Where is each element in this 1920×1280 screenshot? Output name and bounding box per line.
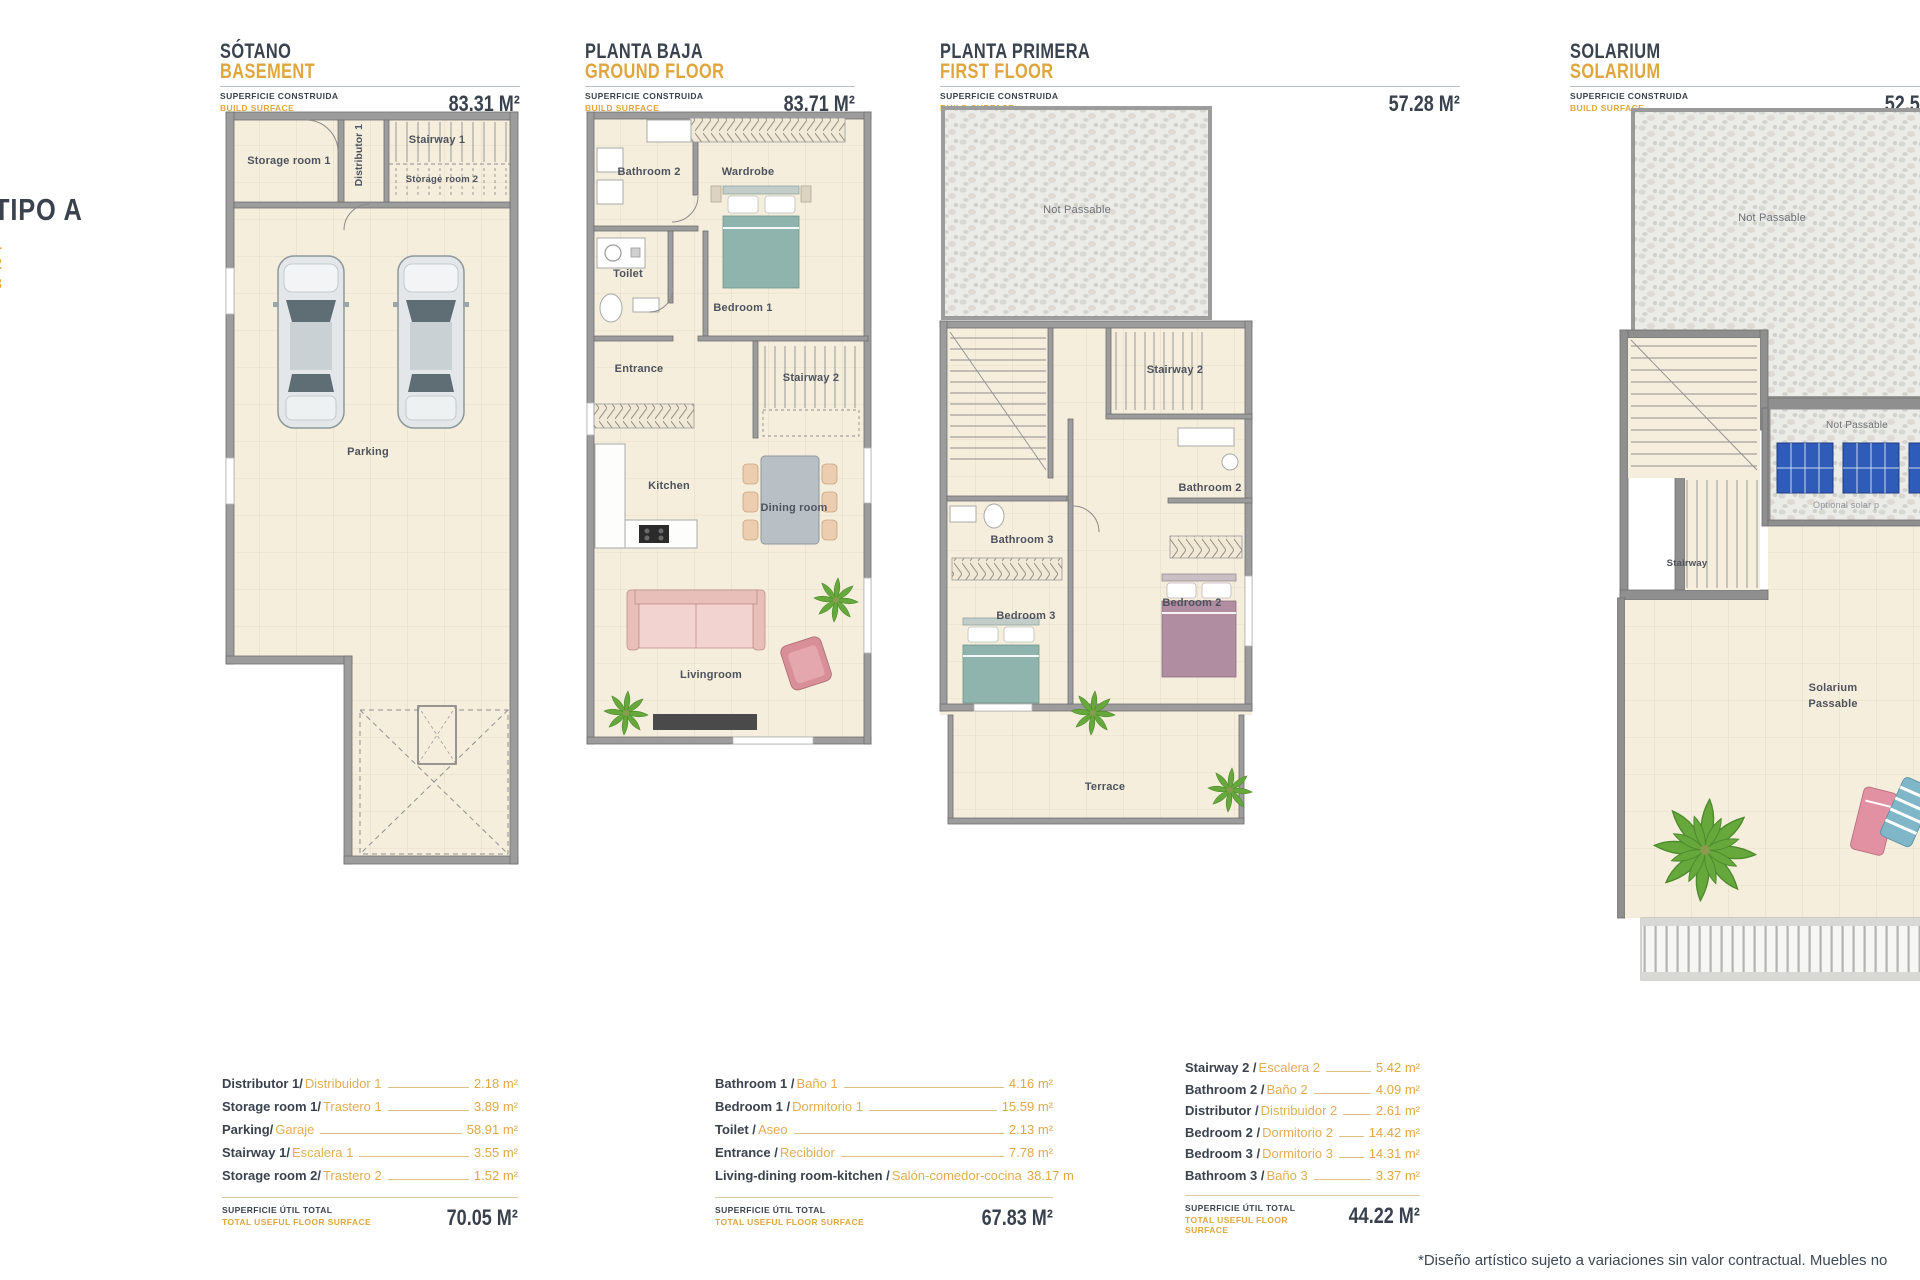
legend-row: Bedroom 2 / Dormitorio 2 14.42 m² bbox=[1185, 1125, 1420, 1147]
tv-bench-icon bbox=[653, 714, 757, 730]
room-label-stairway: Stairway bbox=[1667, 558, 1708, 569]
legend-room-es: Garaje bbox=[275, 1122, 314, 1137]
legend-room-es: Distribuidor 2 bbox=[1261, 1103, 1338, 1118]
room-label-solarium-passable: Solarium Passable bbox=[1808, 680, 1857, 712]
legend-room-es: Dormitorio 1 bbox=[792, 1099, 863, 1114]
surface-label-es: SUPERFICIE CONSTRUIDA bbox=[585, 91, 703, 101]
surface-label-es: SUPERFICIE CONSTRUIDA bbox=[220, 91, 338, 101]
legend-room-en: Toilet / bbox=[715, 1122, 756, 1137]
room-label-bedroom2: Bedroom 2 bbox=[1162, 597, 1221, 609]
legend-room-en: Bedroom 3 / bbox=[1185, 1146, 1260, 1161]
legend-leader-line bbox=[1343, 1114, 1371, 1115]
total-label-es: SUPERFICIE ÚTIL TOTAL bbox=[222, 1205, 371, 1215]
legend-row: Storage room 2/ Trastero 2 1.52 m² bbox=[222, 1168, 518, 1191]
legend-room-en: Stairway 1/ bbox=[222, 1145, 290, 1160]
lift-icon bbox=[418, 706, 456, 764]
header-divider bbox=[585, 86, 855, 87]
legend-room-en: Stairway 2 / bbox=[1185, 1060, 1257, 1075]
legend-leader-line bbox=[794, 1133, 1004, 1134]
panel-title-en: GROUND FLOOR bbox=[585, 62, 796, 82]
header-divider bbox=[220, 86, 520, 87]
room-label-bathroom3: Bathroom 3 bbox=[990, 534, 1053, 546]
room-label-bathroom2: Bathroom 2 bbox=[617, 166, 680, 178]
solarium-floor-main bbox=[1625, 600, 1920, 918]
legend-total: SUPERFICIE ÚTIL TOTAL TOTAL USEFUL FLOOR… bbox=[1185, 1203, 1420, 1235]
legend-total: SUPERFICIE ÚTIL TOTAL TOTAL USEFUL FLOOR… bbox=[222, 1205, 518, 1231]
room-label-bedroom1: Bedroom 1 bbox=[713, 302, 772, 314]
wardrobe-hatch bbox=[952, 558, 1062, 580]
legend-leader-line bbox=[388, 1087, 469, 1088]
legend-room-en: Distributor / bbox=[1185, 1103, 1259, 1118]
room-label-not-passable: Not Passable bbox=[1043, 204, 1111, 216]
legend-room-en: Bathroom 3 / bbox=[1185, 1168, 1264, 1183]
type-label: TIPO A bbox=[0, 192, 83, 228]
legend-row: Distributor 1/ Distribuidor 1 2.18 m² bbox=[222, 1076, 518, 1099]
legend-room-value: 3.89 m² bbox=[474, 1099, 518, 1114]
surface-value: 57.28 M² bbox=[1389, 91, 1460, 117]
legend-leader-line bbox=[869, 1110, 997, 1111]
legend-room-es: Recibidor bbox=[780, 1145, 835, 1160]
wardrobe-hatch bbox=[690, 118, 845, 142]
hall-closet-hatch bbox=[594, 404, 694, 428]
floorplan-sheet: TIPO A 1 2 3 SÓTANO BASEMENT SUPERFICIE … bbox=[0, 0, 1920, 1280]
legend-room-es: Escalera 1 bbox=[292, 1145, 353, 1160]
dining-set-icon bbox=[743, 456, 837, 544]
surface-label-es: SUPERFICIE CONSTRUIDA bbox=[940, 91, 1058, 101]
legend-room-en: Storage room 1/ bbox=[222, 1099, 321, 1114]
legend-row: Storage room 1/ Trastero 1 3.89 m² bbox=[222, 1099, 518, 1122]
legend-divider bbox=[1185, 1195, 1420, 1196]
solar-panel-icon bbox=[1777, 443, 1920, 493]
car-icon bbox=[273, 256, 349, 428]
legend-room-value: 4.16 m² bbox=[1009, 1076, 1053, 1091]
room-label-distributor1: Distributor 1 bbox=[353, 124, 365, 186]
room-label-not-passable-top: Not Passable bbox=[1738, 212, 1806, 224]
legend-room-value: 15.59 m² bbox=[1002, 1099, 1053, 1114]
legend-leader-line bbox=[388, 1179, 469, 1180]
solarium-floor-upper bbox=[1768, 526, 1920, 600]
legend-room-value: 3.37 m² bbox=[1376, 1168, 1420, 1183]
legend-room-en: Living-dining room-kitchen / bbox=[715, 1168, 890, 1183]
terrace-floor bbox=[948, 715, 1244, 822]
legend-room-es: Salón-comedor-cocina bbox=[892, 1168, 1022, 1183]
basement-floor bbox=[226, 112, 518, 864]
room-label-dining: Dining room bbox=[761, 502, 828, 514]
legend-room-value: 14.42 m² bbox=[1369, 1125, 1420, 1140]
legend-row: Bedroom 1 / Dormitorio 1 15.59 m² bbox=[715, 1099, 1053, 1122]
room-label-stairway2: Stairway 2 bbox=[1147, 364, 1203, 376]
legend-leader-line bbox=[1326, 1071, 1371, 1072]
car-icon bbox=[393, 256, 469, 428]
solarium-floorplan: Not Passable Not Passable Optional solar… bbox=[1617, 108, 1920, 993]
legend-room-value: 38.17 m bbox=[1027, 1168, 1074, 1183]
room-label-terrace: Terrace bbox=[1085, 781, 1125, 793]
room-label-living: Livingroom bbox=[680, 669, 742, 681]
total-value: 67.83 M² bbox=[982, 1205, 1053, 1231]
legend-room-value: 7.78 m² bbox=[1009, 1145, 1053, 1160]
legend-room-value: 2.18 m² bbox=[474, 1076, 518, 1091]
legend-row: Bathroom 2 / Baño 2 4.09 m² bbox=[1185, 1082, 1420, 1104]
room-label-stairway2: Stairway 2 bbox=[783, 372, 839, 384]
room-label-toilet: Toilet bbox=[613, 268, 643, 280]
room-label-storage1: Storage room 1 bbox=[247, 155, 331, 167]
legend-room-value: 58.91 m² bbox=[467, 1122, 518, 1137]
first-legend: Stairway 2 / Escalera 2 5.42 m² Bathroom… bbox=[1185, 1060, 1420, 1235]
legend-room-es: Dormitorio 2 bbox=[1262, 1125, 1333, 1140]
room-label-optional-panels: Optional solar p bbox=[1813, 500, 1879, 510]
pergola-icon bbox=[1641, 918, 1920, 980]
total-label-en: TOTAL USEFUL FLOOR SURFACE bbox=[715, 1217, 864, 1227]
legend-room-en: Bedroom 1 / bbox=[715, 1099, 790, 1114]
basement-header: SÓTANO BASEMENT SUPERFICIE CONSTRUIDA BU… bbox=[220, 42, 520, 117]
legend-leader-line bbox=[359, 1156, 469, 1157]
legend-row: Bedroom 3 / Dormitorio 3 14.31 m² bbox=[1185, 1146, 1420, 1168]
legend-room-en: Storage room 2/ bbox=[222, 1168, 321, 1183]
legend-room-en: Bedroom 2 / bbox=[1185, 1125, 1260, 1140]
legend-room-en: Bathroom 1 / bbox=[715, 1076, 794, 1091]
ground-floorplan: Bathroom 2 Wardrobe Toilet Bedroom 1 Ent… bbox=[583, 108, 875, 748]
legend-room-value: 3.55 m² bbox=[474, 1145, 518, 1160]
room-label-bedroom3: Bedroom 3 bbox=[996, 610, 1055, 622]
type-unit-1: 1 bbox=[0, 236, 2, 254]
legend-divider bbox=[222, 1197, 518, 1198]
type-unit-3: 3 bbox=[0, 276, 2, 294]
legend-room-en: Parking/ bbox=[222, 1122, 273, 1137]
legend-leader-line bbox=[1339, 1136, 1364, 1137]
legend-room-es: Escalera 2 bbox=[1259, 1060, 1320, 1075]
washer-detail bbox=[631, 248, 640, 257]
room-label-entrance: Entrance bbox=[615, 363, 664, 375]
legend-room-es: Trastero 1 bbox=[323, 1099, 382, 1114]
room-label-parking: Parking bbox=[347, 446, 389, 458]
total-value: 44.22 M² bbox=[1349, 1203, 1420, 1229]
legend-leader-line bbox=[1314, 1093, 1371, 1094]
legend-room-es: Aseo bbox=[758, 1122, 788, 1137]
legend-total: SUPERFICIE ÚTIL TOTAL TOTAL USEFUL FLOOR… bbox=[715, 1205, 1053, 1231]
sofa-icon bbox=[627, 590, 765, 650]
ground-floor-header: PLANTA BAJA GROUND FLOOR SUPERFICIE CONS… bbox=[585, 42, 855, 117]
panel-title-en: BASEMENT bbox=[220, 62, 454, 82]
room-label-stairway1: Stairway 1 bbox=[409, 134, 465, 146]
legend-room-value: 14.31 m² bbox=[1369, 1146, 1420, 1161]
room-label-storage2: Storage room 2 bbox=[406, 174, 478, 185]
total-label-en: TOTAL USEFUL FLOOR SURFACE bbox=[1185, 1215, 1333, 1235]
solarium-header: SOLARIUM SOLARIUM SUPERFICIE CONSTRUIDA … bbox=[1570, 42, 1920, 117]
cooktop-icon bbox=[639, 525, 669, 543]
basement-legend: Distributor 1/ Distribuidor 1 2.18 m² St… bbox=[222, 1076, 518, 1231]
legend-room-value: 1.52 m² bbox=[474, 1168, 518, 1183]
total-label-es: SUPERFICIE ÚTIL TOTAL bbox=[1185, 1203, 1333, 1213]
disclaimer-text: *Diseño artístico sujeto a variaciones s… bbox=[1418, 1252, 1887, 1269]
total-label-es: SUPERFICIE ÚTIL TOTAL bbox=[715, 1205, 864, 1215]
legend-row: Stairway 1/ Escalera 1 3.55 m² bbox=[222, 1145, 518, 1168]
type-unit-2: 2 bbox=[0, 256, 2, 274]
legend-leader-line bbox=[388, 1110, 469, 1111]
legend-row: Stairway 2 / Escalera 2 5.42 m² bbox=[1185, 1060, 1420, 1082]
legend-room-es: Baño 2 bbox=[1266, 1082, 1307, 1097]
legend-row: Distributor / Distribuidor 2 2.61 m² bbox=[1185, 1103, 1420, 1125]
room-label-bathroom2: Bathroom 2 bbox=[1178, 482, 1241, 494]
legend-row: Toilet / Aseo 2.13 m² bbox=[715, 1122, 1053, 1145]
surface-label-es: SUPERFICIE CONSTRUIDA bbox=[1570, 91, 1688, 101]
total-value: 70.05 M² bbox=[447, 1205, 518, 1231]
panel-title-en: SOLARIUM bbox=[1570, 62, 1843, 82]
legend-row: Parking/ Garaje 58.91 m² bbox=[222, 1122, 518, 1145]
legend-room-value: 5.42 m² bbox=[1376, 1060, 1420, 1075]
legend-leader-line bbox=[1339, 1157, 1364, 1158]
stair-upper-floor bbox=[1628, 338, 1760, 478]
panel-title-es: PLANTA BAJA bbox=[585, 42, 796, 62]
legend-divider bbox=[715, 1197, 1053, 1198]
legend-room-es: Dormitorio 3 bbox=[1262, 1146, 1333, 1161]
legend-row: Bathroom 1 / Baño 1 4.16 m² bbox=[715, 1076, 1053, 1099]
header-divider bbox=[940, 86, 1460, 87]
room-label-not-passable-panels: Not Passable bbox=[1826, 420, 1888, 431]
legend-leader-line bbox=[1314, 1179, 1371, 1180]
legend-leader-line bbox=[844, 1087, 1004, 1088]
room-label-kitchen: Kitchen bbox=[648, 480, 690, 492]
legend-leader-line bbox=[320, 1133, 461, 1134]
legend-room-value: 2.61 m² bbox=[1376, 1103, 1420, 1118]
legend-row: Living-dining room-kitchen / Salón-comed… bbox=[715, 1168, 1053, 1191]
legend-room-en: Bathroom 2 / bbox=[1185, 1082, 1264, 1097]
room-label-wardrobe: Wardrobe bbox=[722, 166, 775, 178]
legend-leader-line bbox=[841, 1156, 1004, 1157]
legend-room-es: Distribuidor 1 bbox=[305, 1076, 382, 1091]
legend-row: Bathroom 3 / Baño 3 3.37 m² bbox=[1185, 1168, 1420, 1190]
panel-title-es: SOLARIUM bbox=[1570, 42, 1843, 62]
legend-room-en: Entrance / bbox=[715, 1145, 778, 1160]
panel-title-en: FIRST FLOOR bbox=[940, 62, 1346, 82]
legend-room-value: 2.13 m² bbox=[1009, 1122, 1053, 1137]
legend-room-value: 4.09 m² bbox=[1376, 1082, 1420, 1097]
ground-legend: Bathroom 1 / Baño 1 4.16 m² Bedroom 1 / … bbox=[715, 1076, 1053, 1231]
legend-row: Entrance / Recibidor 7.78 m² bbox=[715, 1145, 1053, 1168]
panel-title-es: SÓTANO bbox=[220, 42, 454, 62]
legend-room-es: Trastero 2 bbox=[323, 1168, 382, 1183]
header-divider bbox=[1570, 86, 1920, 87]
stair-lower-floor bbox=[1685, 478, 1760, 590]
panel-title-es: PLANTA PRIMERA bbox=[940, 42, 1346, 62]
basement-floorplan: Storage room 1 Distributor 1 Stairway 1 … bbox=[222, 108, 522, 872]
wardrobe-hatch bbox=[1170, 536, 1242, 558]
legend-room-es: Baño 1 bbox=[796, 1076, 837, 1091]
legend-room-es: Baño 3 bbox=[1266, 1168, 1307, 1183]
total-label-en: TOTAL USEFUL FLOOR SURFACE bbox=[222, 1217, 371, 1227]
legend-room-en: Distributor 1/ bbox=[222, 1076, 303, 1091]
first-floorplan: Not Passable Stairway 2 Bathroom 2 Bathr… bbox=[938, 106, 1258, 841]
